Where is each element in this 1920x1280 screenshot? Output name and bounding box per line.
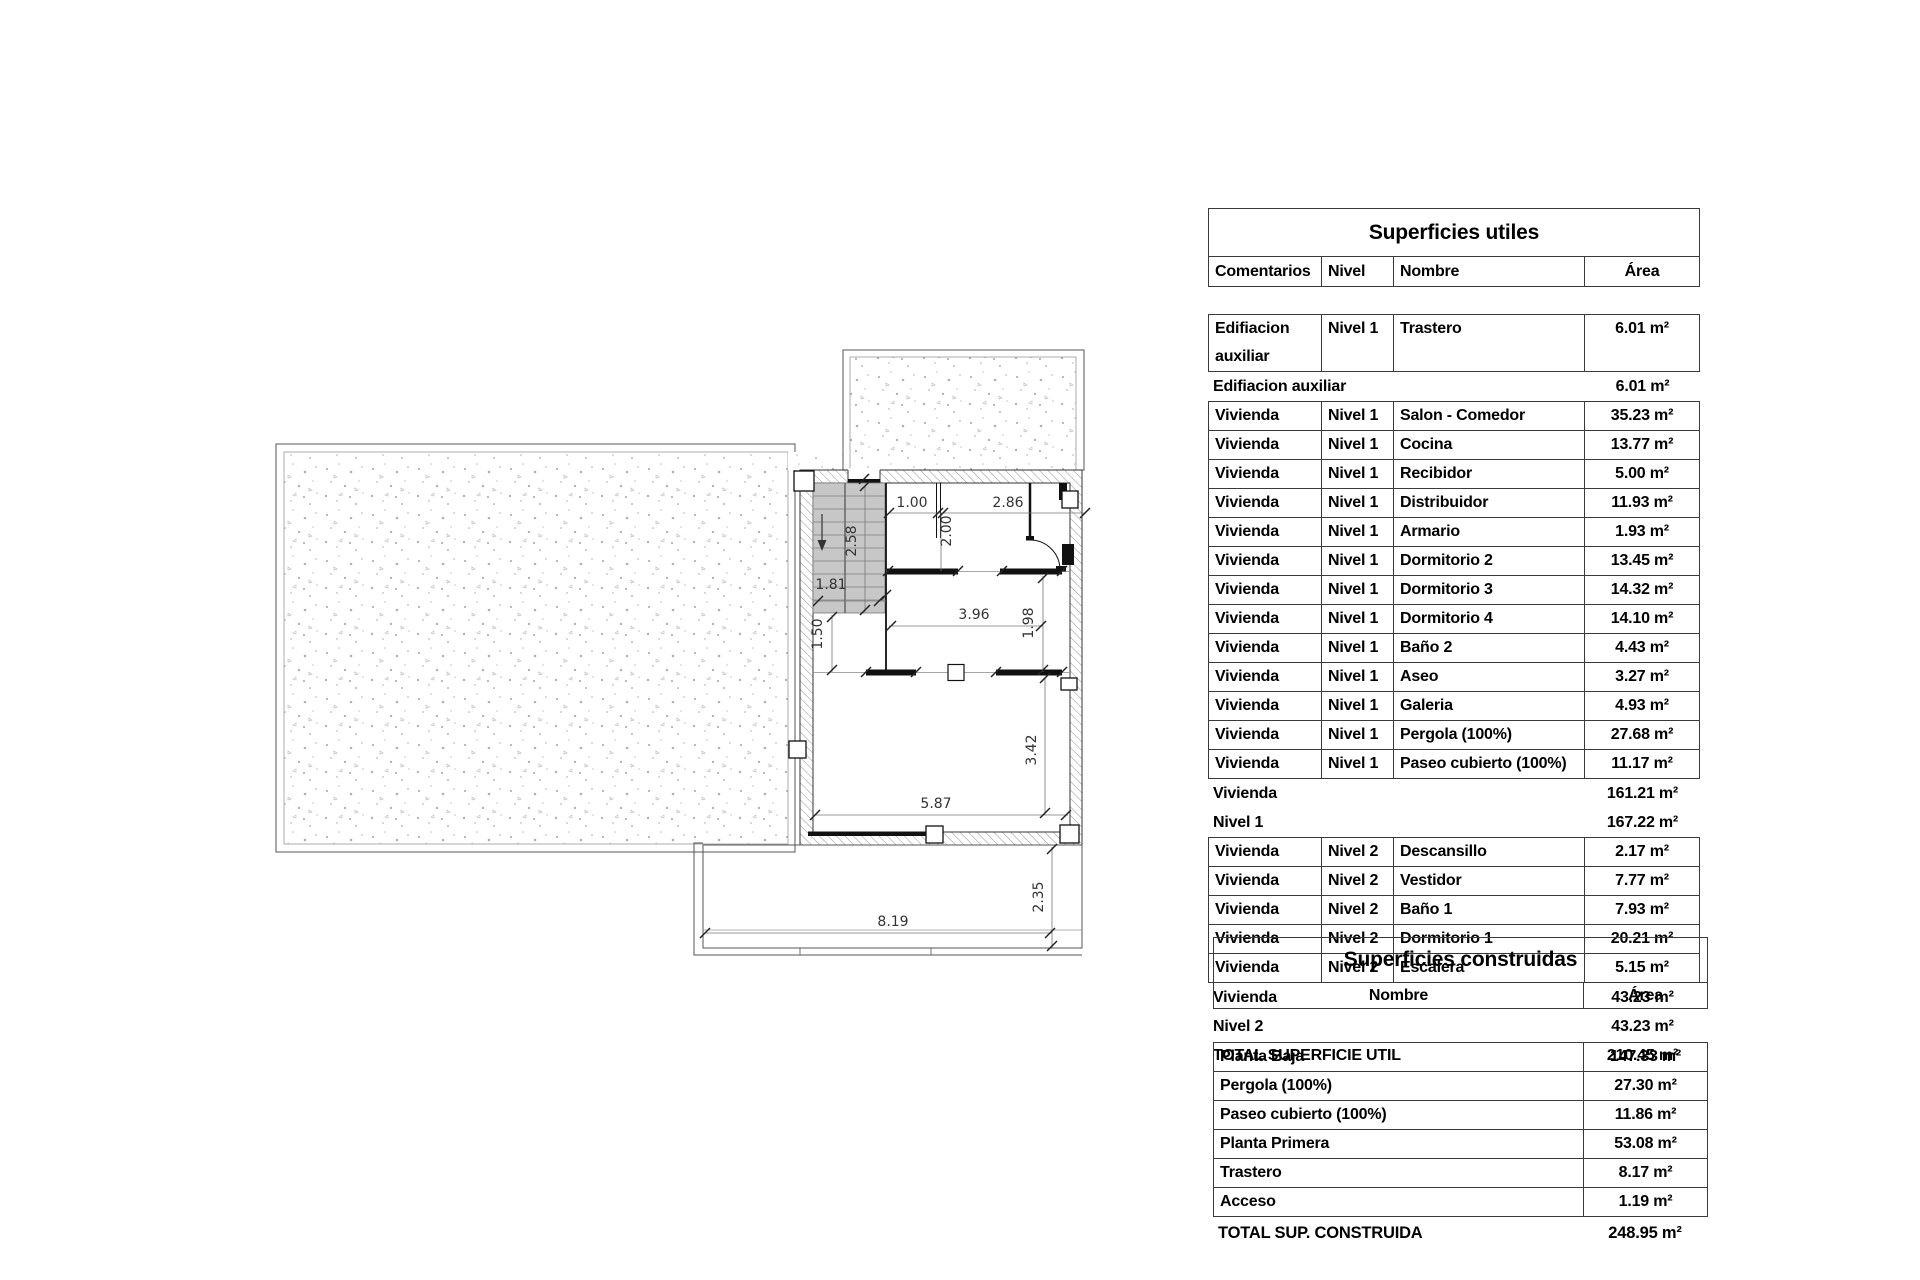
cell-area: 3.27 m² bbox=[1584, 663, 1699, 691]
cell-nivel: Nivel 2 bbox=[1321, 896, 1393, 924]
subtotal-row: Nivel 1167.22 m² bbox=[1208, 808, 1700, 837]
table-utiles-column-headers: Comentarios Nivel Nombre Área bbox=[1209, 257, 1699, 286]
cell-area: 4.93 m² bbox=[1584, 692, 1699, 720]
table-section: ViviendaNivel 1Salon - Comedor35.23 m²Vi… bbox=[1208, 401, 1700, 779]
dim-label-2-35: 2.35 bbox=[1031, 881, 1047, 912]
table-row: ViviendaNivel 2Vestidor7.77 m² bbox=[1209, 866, 1699, 895]
cell-nivel: Nivel 1 bbox=[1321, 663, 1393, 691]
cell-comentarios: Vivienda bbox=[1209, 692, 1321, 720]
cell-area: 1.19 m² bbox=[1583, 1188, 1707, 1216]
subtotal-area: 6.01 m² bbox=[1585, 372, 1700, 401]
cell-nivel: Nivel 2 bbox=[1321, 838, 1393, 866]
table-construidas-body: Planta Baja147.33 m²Pergola (100%)27.30 … bbox=[1213, 1042, 1708, 1250]
cell-area: 5.00 m² bbox=[1584, 460, 1699, 488]
subtotal-label: Edifiacion auxiliar bbox=[1208, 372, 1585, 401]
column-header-nombre: Nombre bbox=[1214, 983, 1583, 1008]
total-row: TOTAL SUP. CONSTRUIDA248.95 m² bbox=[1213, 1217, 1708, 1250]
cell-nivel: Nivel 1 bbox=[1321, 431, 1393, 459]
porch bbox=[694, 843, 1082, 955]
cell-area: 6.01 m² bbox=[1584, 315, 1699, 371]
subtotal-area: 167.22 m² bbox=[1585, 808, 1700, 837]
table-superficies-construidas: Superficies construidas Nombre Área Plan… bbox=[1213, 937, 1708, 1250]
cell-nombre: Baño 1 bbox=[1393, 896, 1584, 924]
table-row: ViviendaNivel 1Dormitorio 414.10 m² bbox=[1209, 604, 1699, 633]
table-row: ViviendaNivel 1Galeria4.93 m² bbox=[1209, 691, 1699, 720]
table-row: ViviendaNivel 1Baño 24.43 m² bbox=[1209, 633, 1699, 662]
cell-area: 11.86 m² bbox=[1583, 1101, 1707, 1129]
cell-nombre: Cocina bbox=[1393, 431, 1584, 459]
dim-label-3-96: 3.96 bbox=[958, 607, 989, 623]
cell-comentarios: Vivienda bbox=[1209, 460, 1321, 488]
cell-nivel: Nivel 1 bbox=[1321, 576, 1393, 604]
cell-comentarios: Vivienda bbox=[1209, 750, 1321, 778]
subtotal-row: Vivienda161.21 m² bbox=[1208, 779, 1700, 808]
cell-nombre: Baño 2 bbox=[1393, 634, 1584, 662]
table-row: ViviendaNivel 1Salon - Comedor35.23 m² bbox=[1209, 402, 1699, 430]
table-row: Edifiacion auxiliarNivel 1Trastero6.01 m… bbox=[1209, 315, 1699, 371]
cell-nivel: Nivel 1 bbox=[1321, 489, 1393, 517]
cell-nombre: Aseo bbox=[1393, 663, 1584, 691]
cell-area: 7.93 m² bbox=[1584, 896, 1699, 924]
table-row: ViviendaNivel 1Dormitorio 314.32 m² bbox=[1209, 575, 1699, 604]
cell-nivel: Nivel 2 bbox=[1321, 867, 1393, 895]
cell-nombre: Planta Primera bbox=[1214, 1130, 1583, 1158]
table-utiles-header-box: Superficies utiles Comentarios Nivel Nom… bbox=[1208, 208, 1700, 287]
cell-area: 4.43 m² bbox=[1584, 634, 1699, 662]
subtotal-area: 161.21 m² bbox=[1585, 779, 1700, 808]
cell-nombre: Trastero bbox=[1393, 315, 1584, 371]
cell-area: 147.33 m² bbox=[1583, 1043, 1707, 1071]
cell-nivel: Nivel 1 bbox=[1321, 518, 1393, 546]
dim-label-2-00: 2.00 bbox=[939, 515, 955, 546]
total-label: TOTAL SUP. CONSTRUIDA bbox=[1213, 1217, 1582, 1250]
cell-nombre: Acceso bbox=[1214, 1188, 1583, 1216]
cell-comentarios: Vivienda bbox=[1209, 547, 1321, 575]
cell-nivel: Nivel 1 bbox=[1321, 692, 1393, 720]
table-row: ViviendaNivel 1Distribuidor11.93 m² bbox=[1209, 488, 1699, 517]
cell-nombre: Dormitorio 2 bbox=[1393, 547, 1584, 575]
cell-nombre: Dormitorio 3 bbox=[1393, 576, 1584, 604]
table-section: Planta Baja147.33 m²Pergola (100%)27.30 … bbox=[1213, 1042, 1708, 1217]
dim-label-8-19: 8.19 bbox=[877, 914, 908, 930]
cell-area: 35.23 m² bbox=[1584, 402, 1699, 430]
table-row: Planta Primera53.08 m² bbox=[1214, 1129, 1707, 1158]
cell-nombre: Pergola (100%) bbox=[1214, 1072, 1583, 1100]
cell-comentarios: Vivienda bbox=[1209, 634, 1321, 662]
cell-nombre: Paseo cubierto (100%) bbox=[1214, 1101, 1583, 1129]
table-row: ViviendaNivel 1Pergola (100%)27.68 m² bbox=[1209, 720, 1699, 749]
door-arc-icon bbox=[1030, 540, 1060, 570]
cell-nivel: Nivel 1 bbox=[1321, 605, 1393, 633]
column-header-area: Área bbox=[1583, 983, 1707, 1008]
cell-comentarios: Vivienda bbox=[1209, 721, 1321, 749]
column-header-area: Área bbox=[1584, 257, 1699, 286]
table-row: ViviendaNivel 1Dormitorio 213.45 m² bbox=[1209, 546, 1699, 575]
cell-comentarios: Vivienda bbox=[1209, 489, 1321, 517]
table-row: ViviendaNivel 1Cocina13.77 m² bbox=[1209, 430, 1699, 459]
cell-comentarios: Vivienda bbox=[1209, 867, 1321, 895]
table-construidas-title: Superficies construidas bbox=[1214, 938, 1707, 983]
table-row: Acceso1.19 m² bbox=[1214, 1187, 1707, 1216]
dim-label-1-81: 1.81 bbox=[815, 577, 846, 593]
dim-label-3-42: 3.42 bbox=[1024, 734, 1040, 765]
cell-nombre: Salon - Comedor bbox=[1393, 402, 1584, 430]
cell-nombre: Descansillo bbox=[1393, 838, 1584, 866]
total-area: 248.95 m² bbox=[1582, 1217, 1708, 1250]
cell-comentarios: Vivienda bbox=[1209, 896, 1321, 924]
subtotal-row: Edifiacion auxiliar6.01 m² bbox=[1208, 372, 1700, 401]
dim-label-1-00: 1.00 bbox=[896, 495, 927, 511]
table-construidas-header-box: Superficies construidas Nombre Área bbox=[1213, 937, 1708, 1009]
table-row: ViviendaNivel 1Paseo cubierto (100%)11.1… bbox=[1209, 749, 1699, 778]
table-row: Trastero8.17 m² bbox=[1214, 1158, 1707, 1187]
cell-comentarios: Vivienda bbox=[1209, 605, 1321, 633]
cell-area: 27.68 m² bbox=[1584, 721, 1699, 749]
table-row: ViviendaNivel 1Armario1.93 m² bbox=[1209, 517, 1699, 546]
table-row: Paseo cubierto (100%)11.86 m² bbox=[1214, 1100, 1707, 1129]
table-row: ViviendaNivel 1Aseo3.27 m² bbox=[1209, 662, 1699, 691]
cell-nombre: Trastero bbox=[1214, 1159, 1583, 1187]
cell-area: 13.45 m² bbox=[1584, 547, 1699, 575]
table-section: Edifiacion auxiliarNivel 1Trastero6.01 m… bbox=[1208, 314, 1700, 372]
cell-nombre: Vestidor bbox=[1393, 867, 1584, 895]
dim-label-2-58: 2.58 bbox=[844, 525, 860, 556]
cell-area: 7.77 m² bbox=[1584, 867, 1699, 895]
cell-nivel: Nivel 1 bbox=[1321, 634, 1393, 662]
table-utiles-title: Superficies utiles bbox=[1209, 209, 1699, 257]
table-row: ViviendaNivel 2Descansillo2.17 m² bbox=[1209, 838, 1699, 866]
cell-nivel: Nivel 1 bbox=[1321, 402, 1393, 430]
column-header-comentarios: Comentarios bbox=[1209, 257, 1321, 286]
cell-area: 11.93 m² bbox=[1584, 489, 1699, 517]
cell-comentarios: Vivienda bbox=[1209, 663, 1321, 691]
cell-comentarios: Vivienda bbox=[1209, 431, 1321, 459]
dim-label-5-87: 5.87 bbox=[920, 796, 951, 812]
cell-nivel: Nivel 1 bbox=[1321, 547, 1393, 575]
column-header-nombre: Nombre bbox=[1393, 257, 1584, 286]
dim-label-1-50: 1.50 bbox=[810, 618, 826, 649]
cell-area: 53.08 m² bbox=[1583, 1130, 1707, 1158]
cell-nombre: Distribuidor bbox=[1393, 489, 1584, 517]
cell-nombre: Pergola (100%) bbox=[1393, 721, 1584, 749]
cell-area: 1.93 m² bbox=[1584, 518, 1699, 546]
cell-nombre: Armario bbox=[1393, 518, 1584, 546]
cell-nivel: Nivel 1 bbox=[1321, 460, 1393, 488]
cell-comentarios: Vivienda bbox=[1209, 576, 1321, 604]
table-row: Planta Baja147.33 m² bbox=[1214, 1043, 1707, 1071]
dim-label-2-86: 2.86 bbox=[992, 495, 1023, 511]
cell-nombre: Paseo cubierto (100%) bbox=[1393, 750, 1584, 778]
dim-label-1-98: 1.98 bbox=[1021, 607, 1037, 638]
cell-nombre: Dormitorio 4 bbox=[1393, 605, 1584, 633]
cell-comentarios: Vivienda bbox=[1209, 518, 1321, 546]
terrace-area bbox=[276, 444, 843, 852]
cell-area: 14.10 m² bbox=[1584, 605, 1699, 633]
upper-patio-area bbox=[843, 350, 1084, 470]
cell-nombre: Planta Baja bbox=[1214, 1043, 1583, 1071]
cell-area: 11.17 m² bbox=[1584, 750, 1699, 778]
table-row: Pergola (100%)27.30 m² bbox=[1214, 1071, 1707, 1100]
porch-step bbox=[800, 948, 931, 955]
cell-nivel: Nivel 1 bbox=[1321, 750, 1393, 778]
cell-nombre: Galeria bbox=[1393, 692, 1584, 720]
subtotal-label: Nivel 1 bbox=[1208, 808, 1585, 837]
cell-nombre: Recibidor bbox=[1393, 460, 1584, 488]
cell-comentarios: Edifiacion auxiliar bbox=[1209, 315, 1321, 371]
subtotal-label: Vivienda bbox=[1208, 779, 1585, 808]
table-construidas-column-headers: Nombre Área bbox=[1214, 983, 1707, 1008]
architectural-drawing-sheet: 1.00 2.86 2.00 2.58 1.81 1.50 3.96 1.98 … bbox=[0, 0, 1920, 1280]
cell-area: 8.17 m² bbox=[1583, 1159, 1707, 1187]
cell-area: 13.77 m² bbox=[1584, 431, 1699, 459]
cell-nivel: Nivel 1 bbox=[1321, 315, 1393, 371]
column-header-nivel: Nivel bbox=[1321, 257, 1393, 286]
table-row: ViviendaNivel 1Recibidor5.00 m² bbox=[1209, 459, 1699, 488]
cell-area: 2.17 m² bbox=[1584, 838, 1699, 866]
cell-comentarios: Vivienda bbox=[1209, 402, 1321, 430]
cell-nivel: Nivel 1 bbox=[1321, 721, 1393, 749]
cell-area: 27.30 m² bbox=[1583, 1072, 1707, 1100]
cell-comentarios: Vivienda bbox=[1209, 838, 1321, 866]
south-window-band bbox=[808, 832, 926, 837]
table-row: ViviendaNivel 2Baño 17.93 m² bbox=[1209, 895, 1699, 924]
cell-area: 14.32 m² bbox=[1584, 576, 1699, 604]
